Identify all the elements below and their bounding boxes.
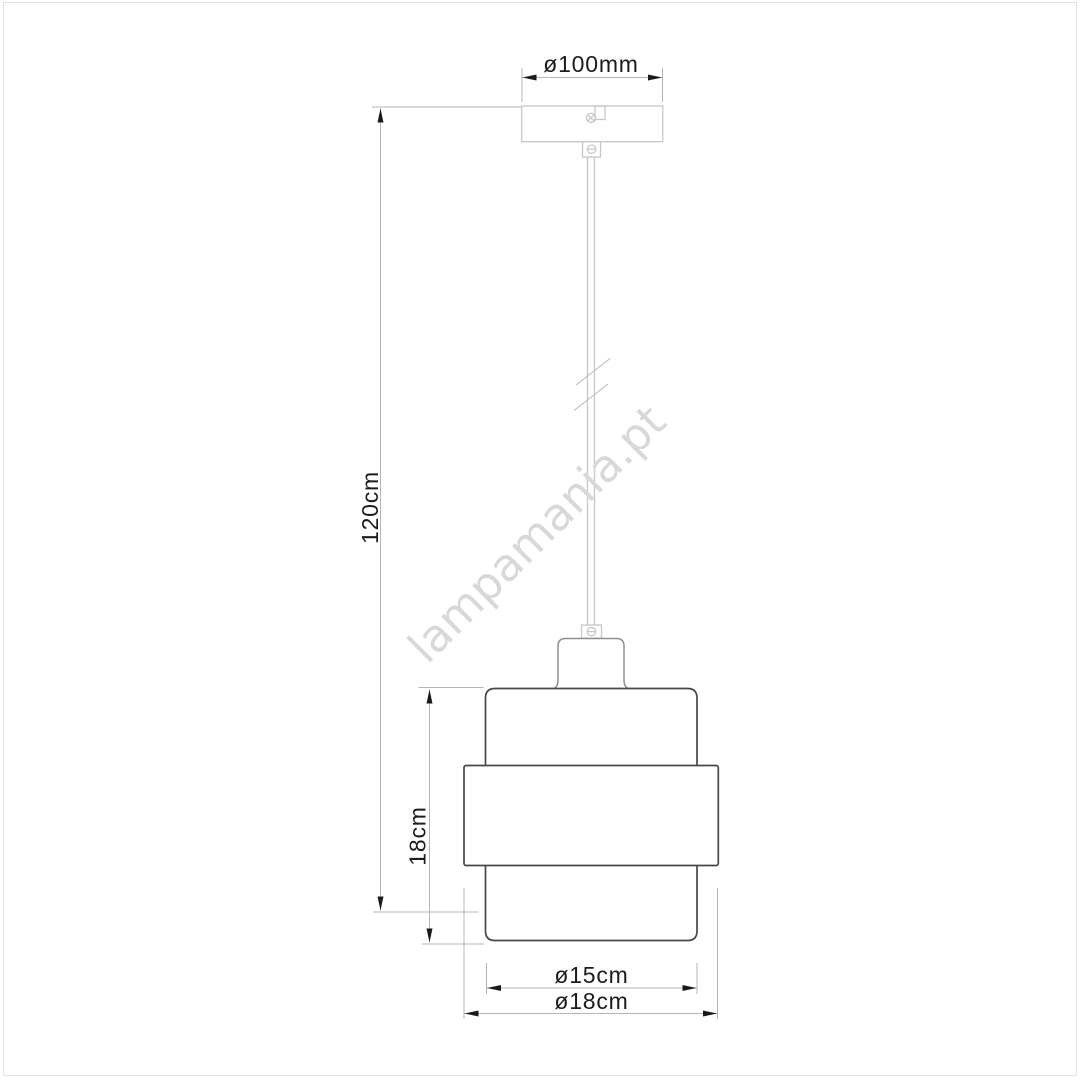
label-suspension-height: 120cm (357, 471, 383, 544)
label-canopy-diameter: ø100mm (543, 51, 639, 77)
ceiling-canopy (522, 106, 663, 157)
technical-drawing-canvas: lampamania.pt ø100mm 120cm 18cm ø15cm (0, 0, 1080, 1080)
label-shade-height: 18cm (405, 806, 431, 865)
shade-middle-band (464, 766, 718, 866)
cable-break-marks (574, 359, 610, 411)
pendant-lamp-diagram: lampamania.pt ø100mm 120cm 18cm ø15cm (0, 0, 1080, 1080)
suspension-cable (574, 157, 610, 638)
shade-top-section (486, 689, 698, 771)
shade-bottom-section (486, 861, 698, 941)
dim-canopy-diameter: ø100mm (522, 51, 663, 102)
lamp-shade (464, 639, 718, 941)
lamp-neck (553, 639, 630, 690)
cord-grip (582, 625, 602, 638)
label-shade-inner-diameter: ø15cm (554, 962, 628, 988)
cord-connector (583, 142, 601, 157)
label-shade-outer-diameter: ø18cm (554, 988, 628, 1014)
watermark: lampamania.pt (398, 395, 676, 673)
